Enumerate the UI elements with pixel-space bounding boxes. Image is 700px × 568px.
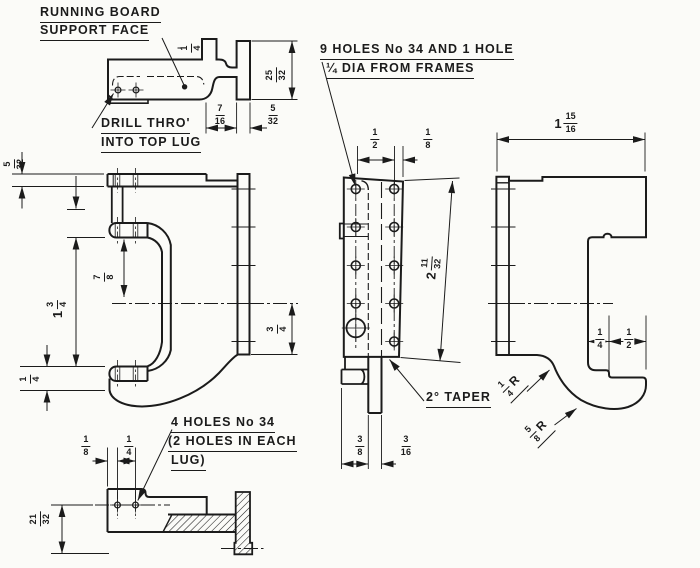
label-four-holes-1: 4 HOLES No 34	[171, 416, 275, 433]
label-running-board-2: SUPPORT FACE	[40, 24, 149, 41]
dim-1-4-sideview: 14	[19, 374, 41, 383]
section-hatch-arm	[163, 515, 236, 533]
dim-1-15-16: 1 1516	[554, 112, 577, 134]
dim-5-32-sideview: 532	[3, 159, 25, 170]
dim-7-8: 78	[93, 272, 115, 281]
label-running-board-1: RUNNING BOARD	[40, 6, 161, 23]
dim-3-16: 316	[401, 435, 412, 457]
hole-wall-lines	[115, 174, 138, 381]
drawing-canvas	[0, 0, 700, 568]
label-drill-thro-1: DRILL THRO'	[101, 117, 190, 134]
label-taper: 2° TAPER	[426, 391, 491, 408]
dim-1-3-4: 1 34	[46, 300, 68, 318]
dim-25-32: 2532	[265, 68, 287, 83]
rivet-ticks	[491, 189, 516, 342]
label-nine-holes-1: 9 HOLES No 34 AND 1 HOLE	[320, 43, 514, 60]
top-arm	[108, 174, 238, 187]
lower-lug-front	[342, 357, 369, 384]
extension-lines	[51, 448, 136, 554]
dim-1-4-topview: 14	[180, 43, 202, 52]
rivet-ticks	[232, 189, 256, 342]
leader-dot	[182, 84, 187, 89]
dim-3-8: 38	[355, 435, 364, 457]
hole-centerlines	[118, 168, 136, 388]
label-four-holes-3: LUG)	[171, 454, 206, 471]
leader-five-eighths-radius	[555, 409, 577, 426]
dim-2-11-32: 2 1132	[419, 256, 443, 280]
leader-four-holes	[138, 430, 172, 501]
handle-web	[148, 223, 171, 371]
dim-1-2-frontview: 12	[370, 128, 379, 150]
leader-quarter-radius	[527, 370, 550, 392]
dim-21-32: 2132	[29, 512, 51, 527]
end-view-outline	[496, 177, 646, 409]
side-view	[12, 152, 298, 411]
flange-section	[234, 492, 252, 554]
top-view-hidden-line	[113, 77, 204, 86]
dim-1-4-section: 14	[124, 435, 133, 457]
flange-plate	[238, 174, 250, 355]
dim-1-8-section: 18	[81, 435, 90, 457]
dim-1-2-endview: 12	[623, 327, 634, 351]
hole-center-cross	[111, 83, 144, 98]
dim-5-32-topview: 532	[268, 104, 279, 126]
leader-nine-holes	[322, 62, 355, 186]
dim-7-16: 716	[215, 104, 226, 126]
label-four-holes-2: (2 HOLES IN EACH	[168, 435, 297, 452]
drawing-sheet: RUNNING BOARD SUPPORT FACE DRILL THRO' I…	[0, 0, 700, 568]
dim-3-4: 34	[266, 324, 288, 333]
label-nine-holes-2: ¼ DIA FROM FRAMES	[326, 62, 474, 79]
label-drill-thro-2: INTO TOP LUG	[101, 136, 201, 153]
dim-1-8-frontview: 18	[423, 128, 432, 150]
extension-lines	[12, 174, 298, 391]
dim-1-4-endview: 14	[594, 327, 605, 351]
dim-line-2-11-32	[440, 181, 453, 361]
web-tab	[368, 357, 381, 413]
leader-taper	[390, 360, 425, 402]
